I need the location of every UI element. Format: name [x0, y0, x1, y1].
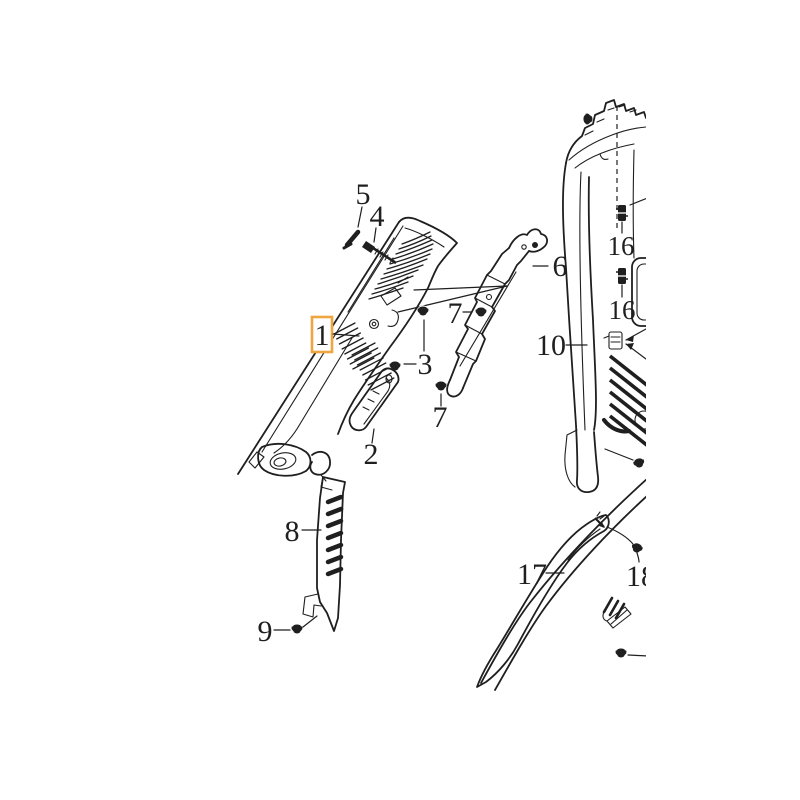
leader-clip9-to-part8: [303, 616, 317, 627]
leader-foot-to-clip: [605, 449, 633, 460]
fastener-clip-7a-icon[interactable]: [476, 307, 487, 317]
screw-part-4[interactable]: [362, 241, 396, 263]
clip16-upper-icon[interactable]: [616, 205, 628, 221]
crown-contour-1: [569, 127, 646, 160]
pillar-speaker-pod: [249, 444, 330, 481]
panel-outline: [350, 368, 399, 430]
sill-prong-bracket: [603, 598, 631, 628]
panel-window-inner: [637, 264, 659, 320]
clip16-lower-icon[interactable]: [616, 268, 628, 284]
callout-7a-label[interactable]: 7: [448, 297, 463, 330]
callout-17-label[interactable]: 17: [517, 558, 547, 591]
callout-2-label[interactable]: 2: [364, 438, 379, 471]
crown-hook-mark: [600, 154, 608, 159]
callout-4-label[interactable]: 4: [370, 200, 385, 233]
latch-arrowhead-upper: [626, 335, 634, 342]
crown-contour-2: [575, 144, 634, 168]
screw-pin-part-5[interactable]: [344, 232, 358, 248]
bracket-right-edge: [463, 251, 529, 388]
callout-9-label[interactable]: 9: [258, 615, 273, 648]
fastener-clip-foot-icon: [632, 457, 645, 469]
callout-5-label[interactable]: 5: [356, 178, 371, 211]
fastener-clip-7b-icon[interactable]: [436, 381, 447, 391]
b-pillar-right-edge: [589, 177, 596, 430]
callout-3-label[interactable]: 3: [418, 348, 433, 381]
callout-7b-label[interactable]: 7: [433, 401, 448, 434]
callout-6-label[interactable]: 6: [553, 250, 568, 283]
bracket-hole-2: [487, 295, 492, 300]
part17-outline: [477, 515, 609, 687]
fastener-clip-top-icon: [583, 114, 593, 125]
part8-vent-slats: [328, 497, 341, 574]
diagram-canvas: 1 2 3 4 5 6 7 7 8 9 10 16 16 17 18: [0, 0, 800, 800]
b-pillar-foot-step: [565, 430, 577, 487]
b-pillar-inner-line: [580, 172, 585, 430]
lower-a-pillar-trim-part[interactable]: [303, 477, 345, 631]
bracket-bottom-hook: [447, 380, 463, 397]
callout-8-label[interactable]: 8: [285, 515, 300, 548]
parts-diagram-page: 1 2 3 4 5 6 7 7 8 9 10 16 16 17 18: [0, 0, 800, 800]
bracket-hole: [522, 245, 526, 249]
panel-latch: [604, 332, 622, 349]
fastener-clip-9-icon[interactable]: [292, 624, 303, 634]
callout-18-label[interactable]: 18: [626, 560, 656, 593]
fastener-clip-sill-icon: [616, 648, 627, 658]
callout-10-label[interactable]: 10: [536, 329, 566, 362]
leader-sill-clip: [628, 655, 648, 656]
callout-16a-label[interactable]: 16: [608, 231, 635, 261]
bracket-rivet: [532, 242, 538, 248]
bracket-top-hook: [509, 229, 547, 252]
trim-insert-panel-part[interactable]: [350, 368, 399, 430]
callout-1-label[interactable]: 1: [315, 319, 330, 352]
horn-inner-line: [405, 228, 444, 247]
lower-b-pillar-trim-part[interactable]: [477, 512, 633, 687]
fastener-clip-3a-icon[interactable]: [418, 306, 429, 316]
callout-16b-label[interactable]: 16: [609, 295, 636, 325]
